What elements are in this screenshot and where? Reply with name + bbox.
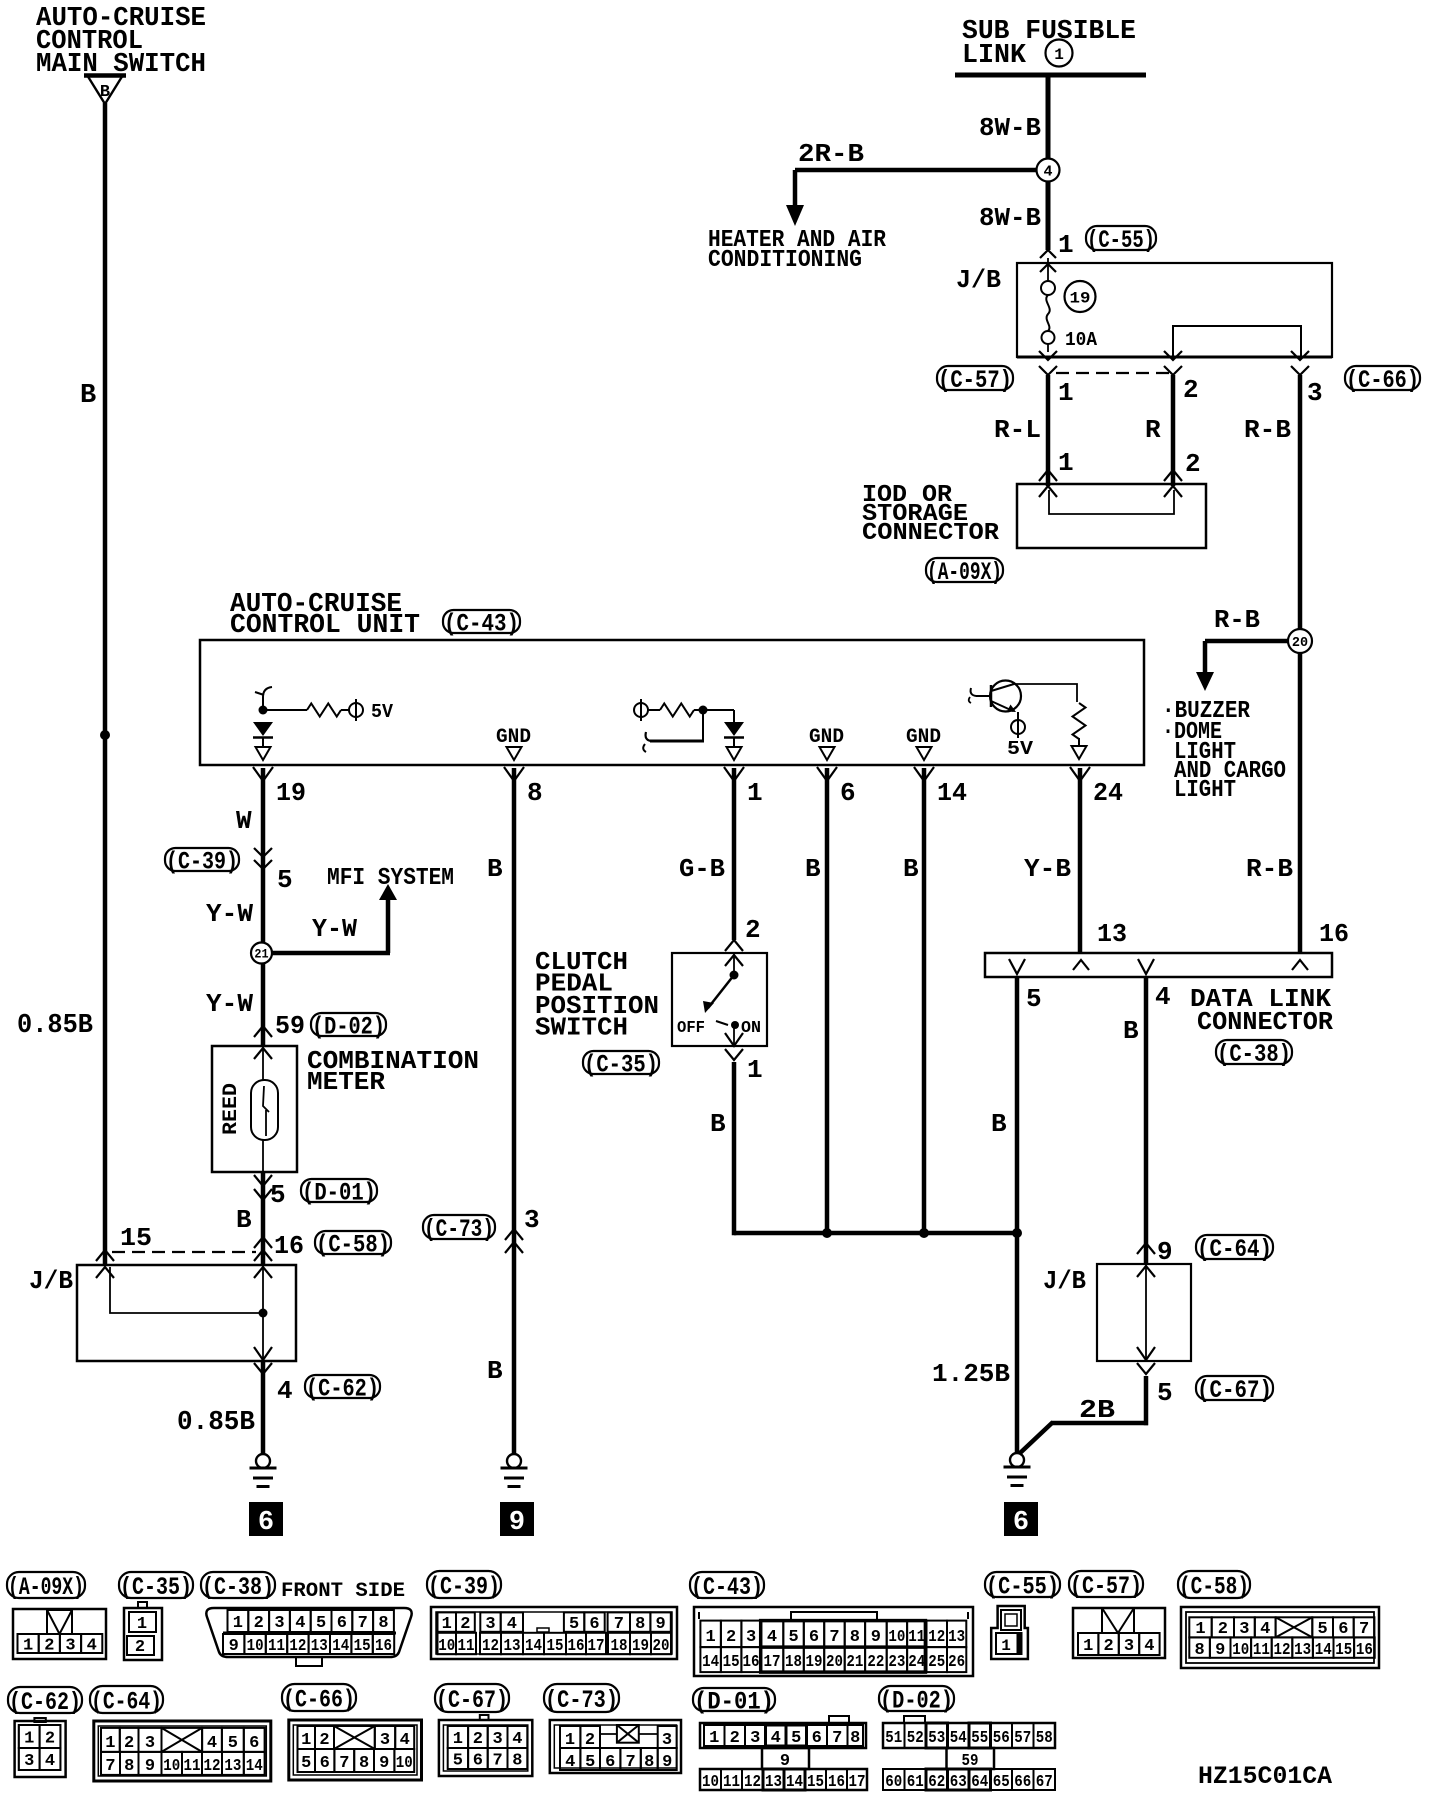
svg-text:2: 2 [1185,449,1201,479]
svg-text:B: B [80,381,96,411]
svg-text:19: 19 [806,1653,823,1672]
svg-text:R-B: R-B [1244,415,1291,445]
svg-text:4: 4 [45,1752,55,1771]
svg-text:56: 56 [993,1729,1010,1748]
svg-text:(D-02): (D-02) [312,1013,385,1042]
svg-text:11: 11 [723,1773,740,1792]
svg-text:R-B: R-B [1246,854,1293,884]
svg-text:12: 12 [744,1773,761,1792]
svg-text:3: 3 [1124,1637,1134,1656]
svg-text:2: 2 [473,1730,483,1749]
svg-text:14: 14 [525,1637,542,1656]
svg-text:5: 5 [270,1180,286,1210]
svg-text:1: 1 [442,1615,452,1634]
svg-text:0.85B: 0.85B [177,1408,255,1438]
svg-text:2: 2 [45,1730,55,1749]
svg-text:1: 1 [1083,1637,1093,1656]
svg-text:2: 2 [1218,1620,1228,1639]
svg-text:22: 22 [867,1653,884,1672]
svg-text:20: 20 [1292,635,1308,651]
svg-text:3: 3 [274,1614,284,1633]
svg-text:B: B [991,1109,1007,1139]
svg-text:3: 3 [746,1628,756,1647]
svg-text:(C-57): (C-57) [938,366,1012,395]
svg-text:B: B [100,83,110,102]
svg-text:B: B [236,1205,252,1235]
svg-text:14: 14 [702,1653,719,1672]
svg-text:B: B [487,1356,503,1386]
svg-text:15: 15 [120,1223,152,1253]
svg-text:8: 8 [124,1757,134,1776]
svg-text:4: 4 [277,1376,293,1406]
svg-text:13: 13 [948,1628,965,1647]
svg-text:ON: ON [741,1019,761,1038]
svg-text:25: 25 [928,1653,945,1672]
svg-text:9: 9 [379,1754,389,1773]
svg-text:4: 4 [1155,982,1171,1012]
svg-text:3: 3 [1307,378,1323,408]
svg-text:13: 13 [765,1773,782,1792]
svg-text:63: 63 [950,1773,967,1792]
svg-text:9: 9 [655,1615,665,1634]
svg-text:4: 4 [565,1753,575,1772]
svg-text:16: 16 [1319,919,1349,949]
svg-text:5: 5 [585,1753,595,1772]
svg-text:1: 1 [453,1730,463,1749]
svg-text:59: 59 [275,1011,305,1041]
svg-text:6: 6 [473,1752,483,1771]
svg-text:R-B: R-B [1214,605,1260,635]
svg-text:Y-B: Y-B [1024,854,1071,884]
svg-text:2: 2 [319,1731,329,1750]
svg-text:Y-W: Y-W [206,899,253,929]
svg-text:20: 20 [826,1653,843,1672]
svg-text:12: 12 [289,1637,306,1656]
svg-text:21: 21 [846,1653,863,1672]
svg-text:3: 3 [492,1730,502,1749]
svg-text:(A-09X): (A-09X) [927,558,1002,587]
svg-text:1: 1 [23,1637,33,1656]
svg-text:5: 5 [1157,1378,1173,1408]
svg-text:5: 5 [301,1754,311,1773]
svg-text:13: 13 [504,1637,521,1656]
svg-text:(D-01): (D-01) [302,1179,376,1208]
svg-text:(C-62): (C-62) [9,1688,81,1717]
svg-text:J/B: J/B [29,1266,73,1296]
svg-text:6: 6 [249,1734,259,1753]
svg-text:2: 2 [730,1729,740,1748]
svg-text:10: 10 [247,1637,264,1656]
svg-text:B: B [805,854,821,884]
svg-text:15: 15 [807,1773,824,1792]
svg-text:(C-35): (C-35) [120,1573,192,1602]
svg-text:METER: METER [307,1067,385,1097]
svg-text:7: 7 [625,1753,635,1772]
svg-text:6: 6 [589,1615,599,1634]
svg-text:17: 17 [764,1653,781,1672]
svg-text:(D-01): (D-01) [694,1688,774,1717]
svg-text:6: 6 [1013,1508,1029,1538]
svg-text:16: 16 [375,1637,392,1656]
svg-text:14: 14 [246,1757,263,1776]
svg-text:61: 61 [907,1773,924,1792]
svg-text:3: 3 [145,1734,155,1753]
svg-text:MFI SYSTEM: MFI SYSTEM [327,865,454,892]
svg-text:4: 4 [400,1731,410,1750]
svg-text:8: 8 [1194,1641,1204,1660]
svg-text:B: B [487,854,503,884]
svg-text:3: 3 [524,1205,540,1235]
svg-text:6: 6 [258,1508,274,1538]
svg-text:16: 16 [274,1231,304,1261]
svg-text:13: 13 [1097,919,1127,949]
svg-text:CONNECTOR: CONNECTOR [1197,1007,1333,1037]
svg-text:B: B [1123,1016,1139,1046]
svg-text:3: 3 [485,1615,495,1634]
svg-text:CONTROL UNIT: CONTROL UNIT [230,611,420,641]
svg-text:5: 5 [316,1614,326,1633]
svg-text:2: 2 [124,1734,134,1753]
svg-text:B: B [710,1109,726,1139]
svg-text:11: 11 [184,1757,201,1776]
svg-text:Y-W: Y-W [312,914,357,944]
svg-text:4: 4 [771,1729,781,1748]
svg-text:2: 2 [726,1628,736,1647]
svg-text:1.25B: 1.25B [932,1359,1010,1389]
svg-text:4: 4 [507,1615,517,1634]
svg-text:15: 15 [1335,1641,1352,1660]
svg-text:REED: REED [220,1083,243,1135]
svg-text:65: 65 [993,1773,1010,1792]
svg-text:FRONT SIDE: FRONT SIDE [281,1580,405,1603]
svg-text:11: 11 [1253,1641,1270,1660]
svg-text:12: 12 [482,1637,499,1656]
svg-text:16: 16 [1356,1641,1373,1660]
svg-text:9: 9 [662,1753,672,1772]
svg-text:3: 3 [1239,1620,1249,1639]
svg-text:13: 13 [224,1757,241,1776]
svg-text:R-L: R-L [994,415,1041,445]
svg-text:1: 1 [1058,448,1074,478]
svg-text:15: 15 [547,1637,564,1656]
svg-text:(C-66): (C-66) [1346,366,1419,395]
svg-text:14: 14 [786,1773,803,1792]
svg-text:GND: GND [809,726,844,749]
svg-text:6: 6 [320,1754,330,1773]
svg-text:5: 5 [569,1615,579,1634]
svg-text:4: 4 [207,1734,217,1753]
svg-text:17: 17 [849,1773,866,1792]
svg-text:16: 16 [743,1653,760,1672]
svg-text:67: 67 [1036,1773,1053,1792]
svg-text:6: 6 [605,1753,615,1772]
svg-text:1: 1 [747,778,763,808]
svg-text:LINK: LINK [962,41,1027,71]
svg-text:10: 10 [1232,1641,1249,1660]
svg-text:10: 10 [702,1773,719,1792]
svg-text:4: 4 [295,1614,305,1633]
svg-text:(C-39): (C-39) [428,1573,500,1602]
svg-text:1: 1 [1058,378,1074,408]
svg-text:11: 11 [268,1637,285,1656]
svg-text:4: 4 [512,1730,522,1749]
svg-text:9: 9 [1215,1641,1225,1660]
svg-text:1: 1 [747,1055,763,1085]
svg-text:8: 8 [850,1628,860,1647]
svg-text:(C-43): (C-43) [691,1573,763,1602]
svg-text:24: 24 [1093,778,1123,808]
svg-text:(C-73): (C-73) [424,1215,494,1244]
svg-text:3: 3 [65,1637,75,1656]
svg-text:5: 5 [228,1734,238,1753]
svg-text:9: 9 [1157,1237,1173,1267]
svg-text:(C-67): (C-67) [1197,1376,1272,1405]
svg-text:R: R [1145,415,1161,445]
svg-text:1: 1 [105,1734,115,1753]
svg-text:(C-38): (C-38) [202,1573,274,1602]
svg-text:1: 1 [301,1731,311,1750]
svg-text:8: 8 [378,1614,388,1633]
svg-text:8: 8 [527,778,543,808]
svg-text:8: 8 [635,1615,645,1634]
svg-text:(C-55): (C-55) [986,1573,1059,1602]
svg-text:16: 16 [568,1637,585,1656]
svg-text:9: 9 [229,1637,239,1656]
svg-text:58: 58 [1036,1729,1053,1748]
svg-text:(C-39): (C-39) [166,848,238,877]
svg-text:6: 6 [812,1729,822,1748]
svg-text:1: 1 [24,1730,34,1749]
svg-text:1: 1 [1195,1620,1205,1639]
svg-text:6: 6 [1338,1620,1348,1639]
svg-text:4: 4 [1144,1637,1154,1656]
svg-text:Y-W: Y-W [206,989,253,1019]
svg-text:5: 5 [453,1752,463,1771]
svg-text:(C-43): (C-43) [444,610,519,639]
svg-text:J/B: J/B [956,265,1001,295]
svg-text:8: 8 [644,1753,654,1772]
svg-text:7: 7 [492,1752,502,1771]
svg-text:3: 3 [380,1731,390,1750]
svg-text:7: 7 [105,1757,115,1776]
svg-text:10: 10 [888,1628,905,1647]
svg-text:1: 1 [233,1614,243,1633]
svg-text:5: 5 [1026,984,1042,1014]
svg-text:10A: 10A [1065,329,1098,351]
svg-text:(C-64): (C-64) [91,1688,162,1717]
svg-text:11: 11 [908,1628,925,1647]
svg-text:10: 10 [438,1637,455,1656]
svg-text:3: 3 [24,1752,34,1771]
svg-text:G-B: G-B [679,854,725,884]
svg-text:14: 14 [937,778,967,808]
svg-text:2: 2 [254,1614,264,1633]
svg-text:5: 5 [1318,1620,1328,1639]
svg-text:CONNECTOR: CONNECTOR [862,520,1000,547]
svg-text:W: W [236,806,252,836]
svg-text:(C-62): (C-62) [306,1375,379,1404]
svg-text:4: 4 [767,1628,777,1647]
svg-text:18: 18 [785,1653,802,1672]
svg-text:7: 7 [829,1628,839,1647]
svg-text:4: 4 [1260,1620,1270,1639]
svg-text:10: 10 [396,1754,413,1773]
svg-text:2: 2 [460,1615,470,1634]
svg-text:66: 66 [1014,1773,1031,1792]
svg-text:17: 17 [588,1637,605,1656]
svg-text:7: 7 [832,1729,842,1748]
svg-text:9: 9 [871,1628,881,1647]
svg-text:1: 1 [709,1729,719,1748]
svg-text:1: 1 [706,1628,716,1647]
svg-text:9: 9 [509,1508,525,1538]
svg-text:(C-38): (C-38) [1217,1040,1291,1069]
svg-text:19: 19 [1070,289,1091,307]
svg-text:OFF: OFF [677,1019,705,1038]
svg-text:5: 5 [277,865,293,895]
svg-text:4: 4 [1043,163,1052,180]
svg-text:20: 20 [653,1637,670,1656]
svg-text:5V: 5V [371,701,394,723]
svg-text:2: 2 [44,1637,54,1656]
svg-text:7: 7 [339,1754,349,1773]
svg-text:8W-B: 8W-B [979,203,1041,233]
svg-text:12: 12 [1274,1641,1291,1660]
svg-text:18: 18 [611,1637,628,1656]
svg-text:(C-58): (C-58) [316,1231,390,1260]
svg-text:8W-B: 8W-B [979,113,1041,143]
svg-text:1: 1 [137,1615,147,1634]
svg-text:64: 64 [971,1773,988,1792]
svg-text:10: 10 [163,1757,180,1776]
svg-text:51: 51 [885,1729,902,1748]
svg-text:(C-64): (C-64) [1197,1235,1272,1264]
svg-text:8: 8 [512,1752,522,1771]
svg-text:26: 26 [948,1653,965,1672]
svg-text:11: 11 [458,1637,475,1656]
svg-text:54: 54 [950,1729,967,1748]
svg-text:(C-57): (C-57) [1070,1572,1142,1601]
svg-text:2: 2 [135,1638,145,1657]
svg-text:2: 2 [1183,375,1199,405]
svg-text:60: 60 [885,1773,902,1792]
svg-text:(C-58): (C-58) [1179,1573,1249,1602]
svg-text:7: 7 [614,1615,624,1634]
svg-text:14: 14 [332,1637,349,1656]
svg-text:6: 6 [840,778,856,808]
svg-text:55: 55 [971,1729,988,1748]
svg-text:SWITCH: SWITCH [535,1013,628,1043]
svg-text:5: 5 [791,1729,801,1748]
svg-text:24: 24 [908,1653,925,1672]
svg-text:19: 19 [632,1637,649,1656]
svg-text:13: 13 [1294,1641,1311,1660]
svg-text:2: 2 [1103,1637,1113,1656]
svg-text:19: 19 [276,778,306,808]
svg-text:CONDITIONING: CONDITIONING [708,247,862,274]
svg-text:8: 8 [850,1729,860,1748]
svg-text:LIGHT: LIGHT [1174,777,1236,804]
svg-text:2: 2 [745,915,761,945]
svg-text:12: 12 [928,1628,945,1647]
svg-text:13: 13 [311,1637,328,1656]
svg-text:(C-35): (C-35) [584,1051,658,1080]
svg-text:(C-66): (C-66) [283,1686,355,1715]
svg-text:23: 23 [888,1653,905,1672]
svg-text:1: 1 [1058,230,1074,260]
svg-text:15: 15 [354,1637,371,1656]
svg-text:(C-73): (C-73) [545,1686,618,1715]
svg-text:6: 6 [809,1628,819,1647]
svg-text:2B: 2B [1079,1395,1115,1425]
svg-text:(D-02): (D-02) [880,1687,953,1716]
svg-text:6: 6 [337,1614,347,1633]
svg-text:52: 52 [907,1729,924,1748]
svg-text:1: 1 [1054,46,1064,64]
svg-text:(C-67): (C-67) [436,1686,508,1715]
svg-text:5V: 5V [1007,738,1034,760]
svg-text:7: 7 [358,1614,368,1633]
svg-text:HZ15C01CA: HZ15C01CA [1198,1762,1332,1791]
svg-text:14: 14 [1315,1641,1332,1660]
svg-text:(A-09X): (A-09X) [8,1573,84,1602]
svg-text:16: 16 [828,1773,845,1792]
svg-text:(C-55): (C-55) [1087,226,1155,255]
svg-text:7: 7 [1359,1620,1369,1639]
svg-text:15: 15 [723,1653,740,1672]
svg-text:2R-B: 2R-B [798,139,864,169]
svg-text:12: 12 [204,1757,221,1776]
svg-text:J/B: J/B [1043,1266,1086,1296]
svg-text:8: 8 [359,1754,369,1773]
svg-text:21: 21 [254,947,268,962]
svg-text:GND: GND [906,726,941,749]
svg-text:1: 1 [1001,1637,1011,1655]
svg-text:B: B [903,854,919,884]
svg-text:3: 3 [750,1729,760,1748]
svg-text:9: 9 [145,1757,155,1776]
svg-text:GND: GND [496,726,531,749]
svg-text:0.85B: 0.85B [17,1011,93,1041]
svg-text:53: 53 [928,1729,945,1748]
svg-text:4: 4 [87,1637,97,1656]
svg-text:62: 62 [928,1773,945,1792]
svg-text:5: 5 [788,1628,798,1647]
svg-text:57: 57 [1014,1729,1031,1748]
